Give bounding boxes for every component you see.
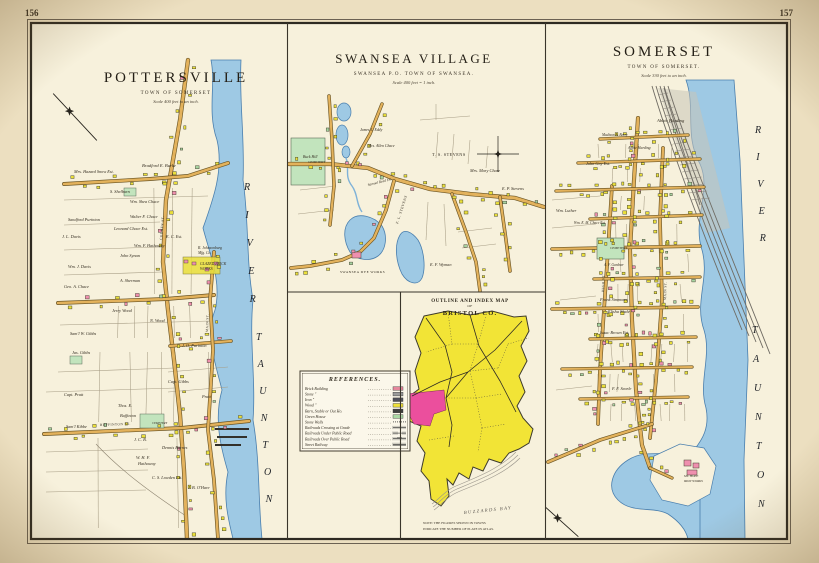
river-name-letter: R [249, 294, 256, 305]
map-label: J. C. B. [134, 437, 147, 442]
map-label: Isaac Brown Est. [599, 330, 629, 335]
map-label: A. F. Gardner [603, 263, 624, 267]
map-label: A. Sherman [119, 278, 140, 283]
map-label: E. P. Stevens [501, 186, 524, 191]
page-number-right: 157 [780, 8, 794, 18]
pottersville-title: POTTERSVILLE [104, 70, 248, 86]
reference-row-label: Railroads Under Public Road [304, 432, 351, 436]
map-label: Wm. J. Davis [68, 264, 91, 269]
somerset-title: SOMERSET [613, 44, 715, 60]
map-label: Mfg. Co. [197, 251, 211, 255]
atlas-map-canvas: 156 157 RIVERTAUNTONMrs. Hazard Snow Est… [0, 0, 819, 563]
map-label: Wm. E. M. Chace Est. [574, 221, 606, 225]
swansea-scale-note: Scale 400 feet = 1 inch. [393, 80, 436, 85]
reference-row-label: Stone Walls [305, 421, 324, 425]
map-label: Thos. E. [118, 403, 132, 408]
map-label: Buck Hill [303, 155, 317, 159]
index-map-county-name: BRISTOL CO. [443, 310, 498, 317]
references-title: REFERENCES. [328, 377, 381, 383]
reference-row-label: Railroads Crossing at Grade [304, 426, 350, 430]
swansea-subtitle: SWANSEA P.O. TOWN OF SWANSEA. [354, 72, 474, 77]
map-label: Sam'l W. Gibbs [70, 331, 97, 336]
river-name-letter: A [752, 354, 760, 365]
pottersville-scale-note: Scale 400 feet to an inch. [153, 99, 199, 104]
map-label: GLAZED BRICK [200, 262, 227, 266]
map-label: CEMETERY [152, 421, 167, 425]
map-label: Mrs. Mary Chase [469, 168, 500, 173]
map-label: Buffinton [120, 413, 136, 418]
map-label: T. S. STEVENS [432, 152, 466, 157]
map-label: Geo. A. Chace [64, 284, 89, 289]
river-name-letter: N [265, 494, 274, 505]
map-label: Capt. Gibbs [168, 379, 189, 384]
river-name-letter: E [758, 206, 765, 217]
map-label: Jas. Gibbs [72, 350, 90, 355]
map-label: R. Johnsonburg [197, 246, 222, 250]
reference-row-label: Stone ″ [305, 393, 317, 397]
swansea-title: SWANSEA VILLAGE [335, 51, 493, 66]
map-label: Mrs. Allen Chace [367, 144, 395, 148]
map-label: J. L. Davis [62, 234, 81, 239]
map-label: MT. HOPE [683, 474, 698, 478]
map-label: Jerry Wood [112, 308, 133, 313]
page-number-left: 156 [25, 8, 39, 18]
map-label: Sandford Purinton [68, 217, 100, 222]
map-label: John Gay Est. [586, 161, 610, 166]
map-label: Bradford E. Burke [142, 163, 176, 168]
river-name-letter: U [259, 386, 267, 397]
map-label: N. Wood [149, 318, 165, 323]
map-label: Wm. F. Hathaway [134, 243, 165, 248]
map-label: E. C. Est. [165, 234, 182, 239]
map-label: J. B. O'Hare [188, 485, 210, 490]
map-label: Sam'l Kibbe [66, 424, 87, 429]
map-label: Hathaway [137, 461, 156, 466]
map-label: Frank Simmons [599, 297, 627, 302]
reference-row-label: Brick Building [305, 387, 328, 391]
reference-row-label: Railroads Over Public Road [304, 437, 349, 441]
map-label: Wm. Luther [556, 208, 577, 213]
index-map-title-of: OF [467, 304, 472, 308]
reference-row-label: Wood ″ [305, 404, 317, 408]
map-label: SWANSEA DYE WORKS [340, 270, 385, 274]
map-label: Leonard Chace Est. [113, 226, 148, 231]
map-label: S. Shelburn [110, 189, 130, 194]
map-label: Wm. Shea Chace [130, 199, 159, 204]
reference-row-label: Green House [305, 415, 326, 419]
index-map-note-line1: NOTE: THE FIGURES SHOWN IN TOWNS [423, 521, 486, 525]
map-label: Pratt [201, 394, 212, 399]
atlas-page: 156 157 RIVERTAUNTONMrs. Hazard Snow Est… [0, 0, 819, 563]
river-name-letter: O [757, 470, 764, 481]
river-name-letter: A [257, 359, 265, 370]
map-label: James L. Eddy [360, 128, 383, 132]
river-name-letter: I [244, 210, 249, 221]
map-label: HIGH ST. [601, 274, 606, 292]
reference-row-label: Street Railway [305, 443, 328, 447]
river-name-letter: N [757, 499, 766, 510]
map-label: Abbie Harding [627, 146, 651, 150]
somerset-subtitle: TOWN OF SOMERSET. [628, 65, 701, 70]
index-map-note-line2: INDICATE THE NUMBER OF PLATE IN ATLAS. [423, 527, 494, 531]
reference-row-label: Iron ″ [304, 398, 315, 402]
river-name-letter: N [260, 413, 269, 424]
map-label: WORKS [200, 267, 213, 271]
map-label: MAIN ST. [663, 281, 668, 300]
map-label: Abbie Harding [656, 118, 685, 123]
map-label: MAIN ST. [205, 313, 210, 332]
river-name-letter: U [754, 383, 762, 394]
map-label: J. O. Purinton [182, 343, 207, 348]
river-name-letter: N [754, 412, 763, 423]
map-label: IRON WORKS [683, 479, 703, 483]
map-label: Madison A. Berry [601, 133, 628, 137]
map-label: Capt. Pratt [64, 392, 84, 397]
map-label: Mrs. Hazard Snow Est. [73, 169, 114, 174]
river-name-letter: I [755, 152, 760, 163]
somerset-scale-note: Scale 330 feet to an inch. [641, 73, 687, 78]
map-label: CEMETERY [610, 246, 628, 250]
river-name-letter: R [754, 125, 761, 136]
map-label: John Synan [120, 253, 140, 258]
map-label: C. S. Lowden Est. [152, 475, 183, 480]
map-label: Dennis Barnes [161, 445, 188, 450]
river-name-letter: O [264, 467, 271, 478]
map-label: Walter F. Chace [130, 214, 158, 219]
map-label: Elisha Slade [607, 309, 630, 314]
river-name-letter: E [247, 266, 254, 277]
pottersville-subtitle: TOWN OF SOMERSET [141, 91, 212, 96]
map-label: W. H. F. [136, 455, 150, 460]
river-name-letter: R [243, 182, 250, 193]
map-label: F. F. Searle [611, 386, 632, 391]
references-legend: REFERENCES.Brick BuildingStone ″Iron ″Wo… [300, 371, 410, 451]
river-name-letter: R [759, 233, 766, 244]
map-label: E. F. Wyman [429, 262, 451, 267]
map-label: CEMETERY [308, 160, 326, 164]
